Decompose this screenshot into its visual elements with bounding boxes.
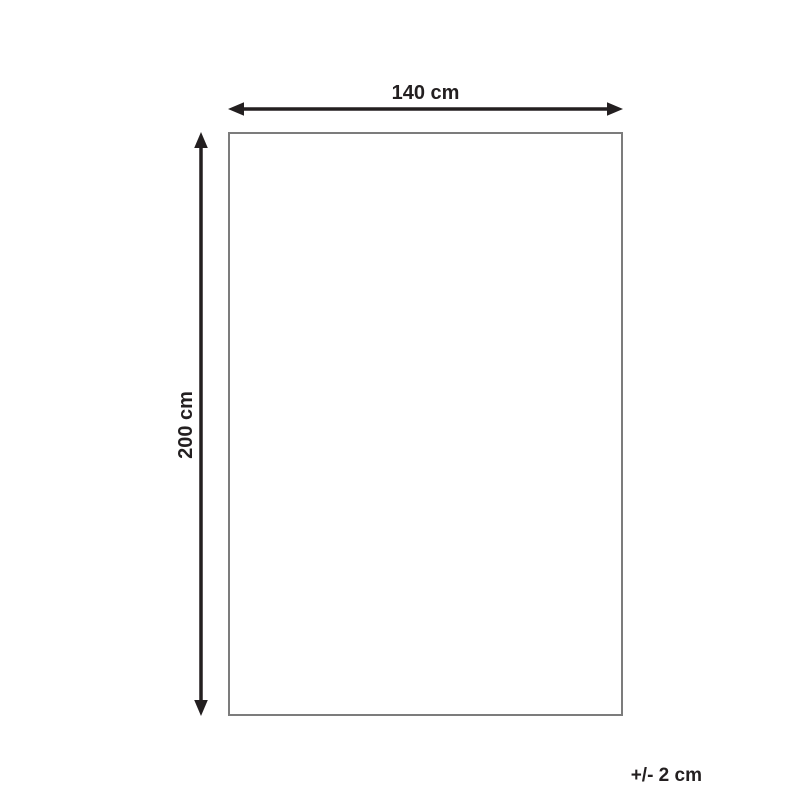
width-dimension-label: 140 cm — [228, 83, 623, 103]
height-dimension-arrow-icon — [193, 132, 209, 716]
product-dimension-diagram: 140 cm 200 cm +/- 2 cm — [0, 0, 800, 800]
tolerance-label: +/- 2 cm — [631, 766, 702, 786]
product-outline-rectangle — [228, 132, 623, 716]
width-dimension-arrow-icon — [228, 101, 623, 117]
